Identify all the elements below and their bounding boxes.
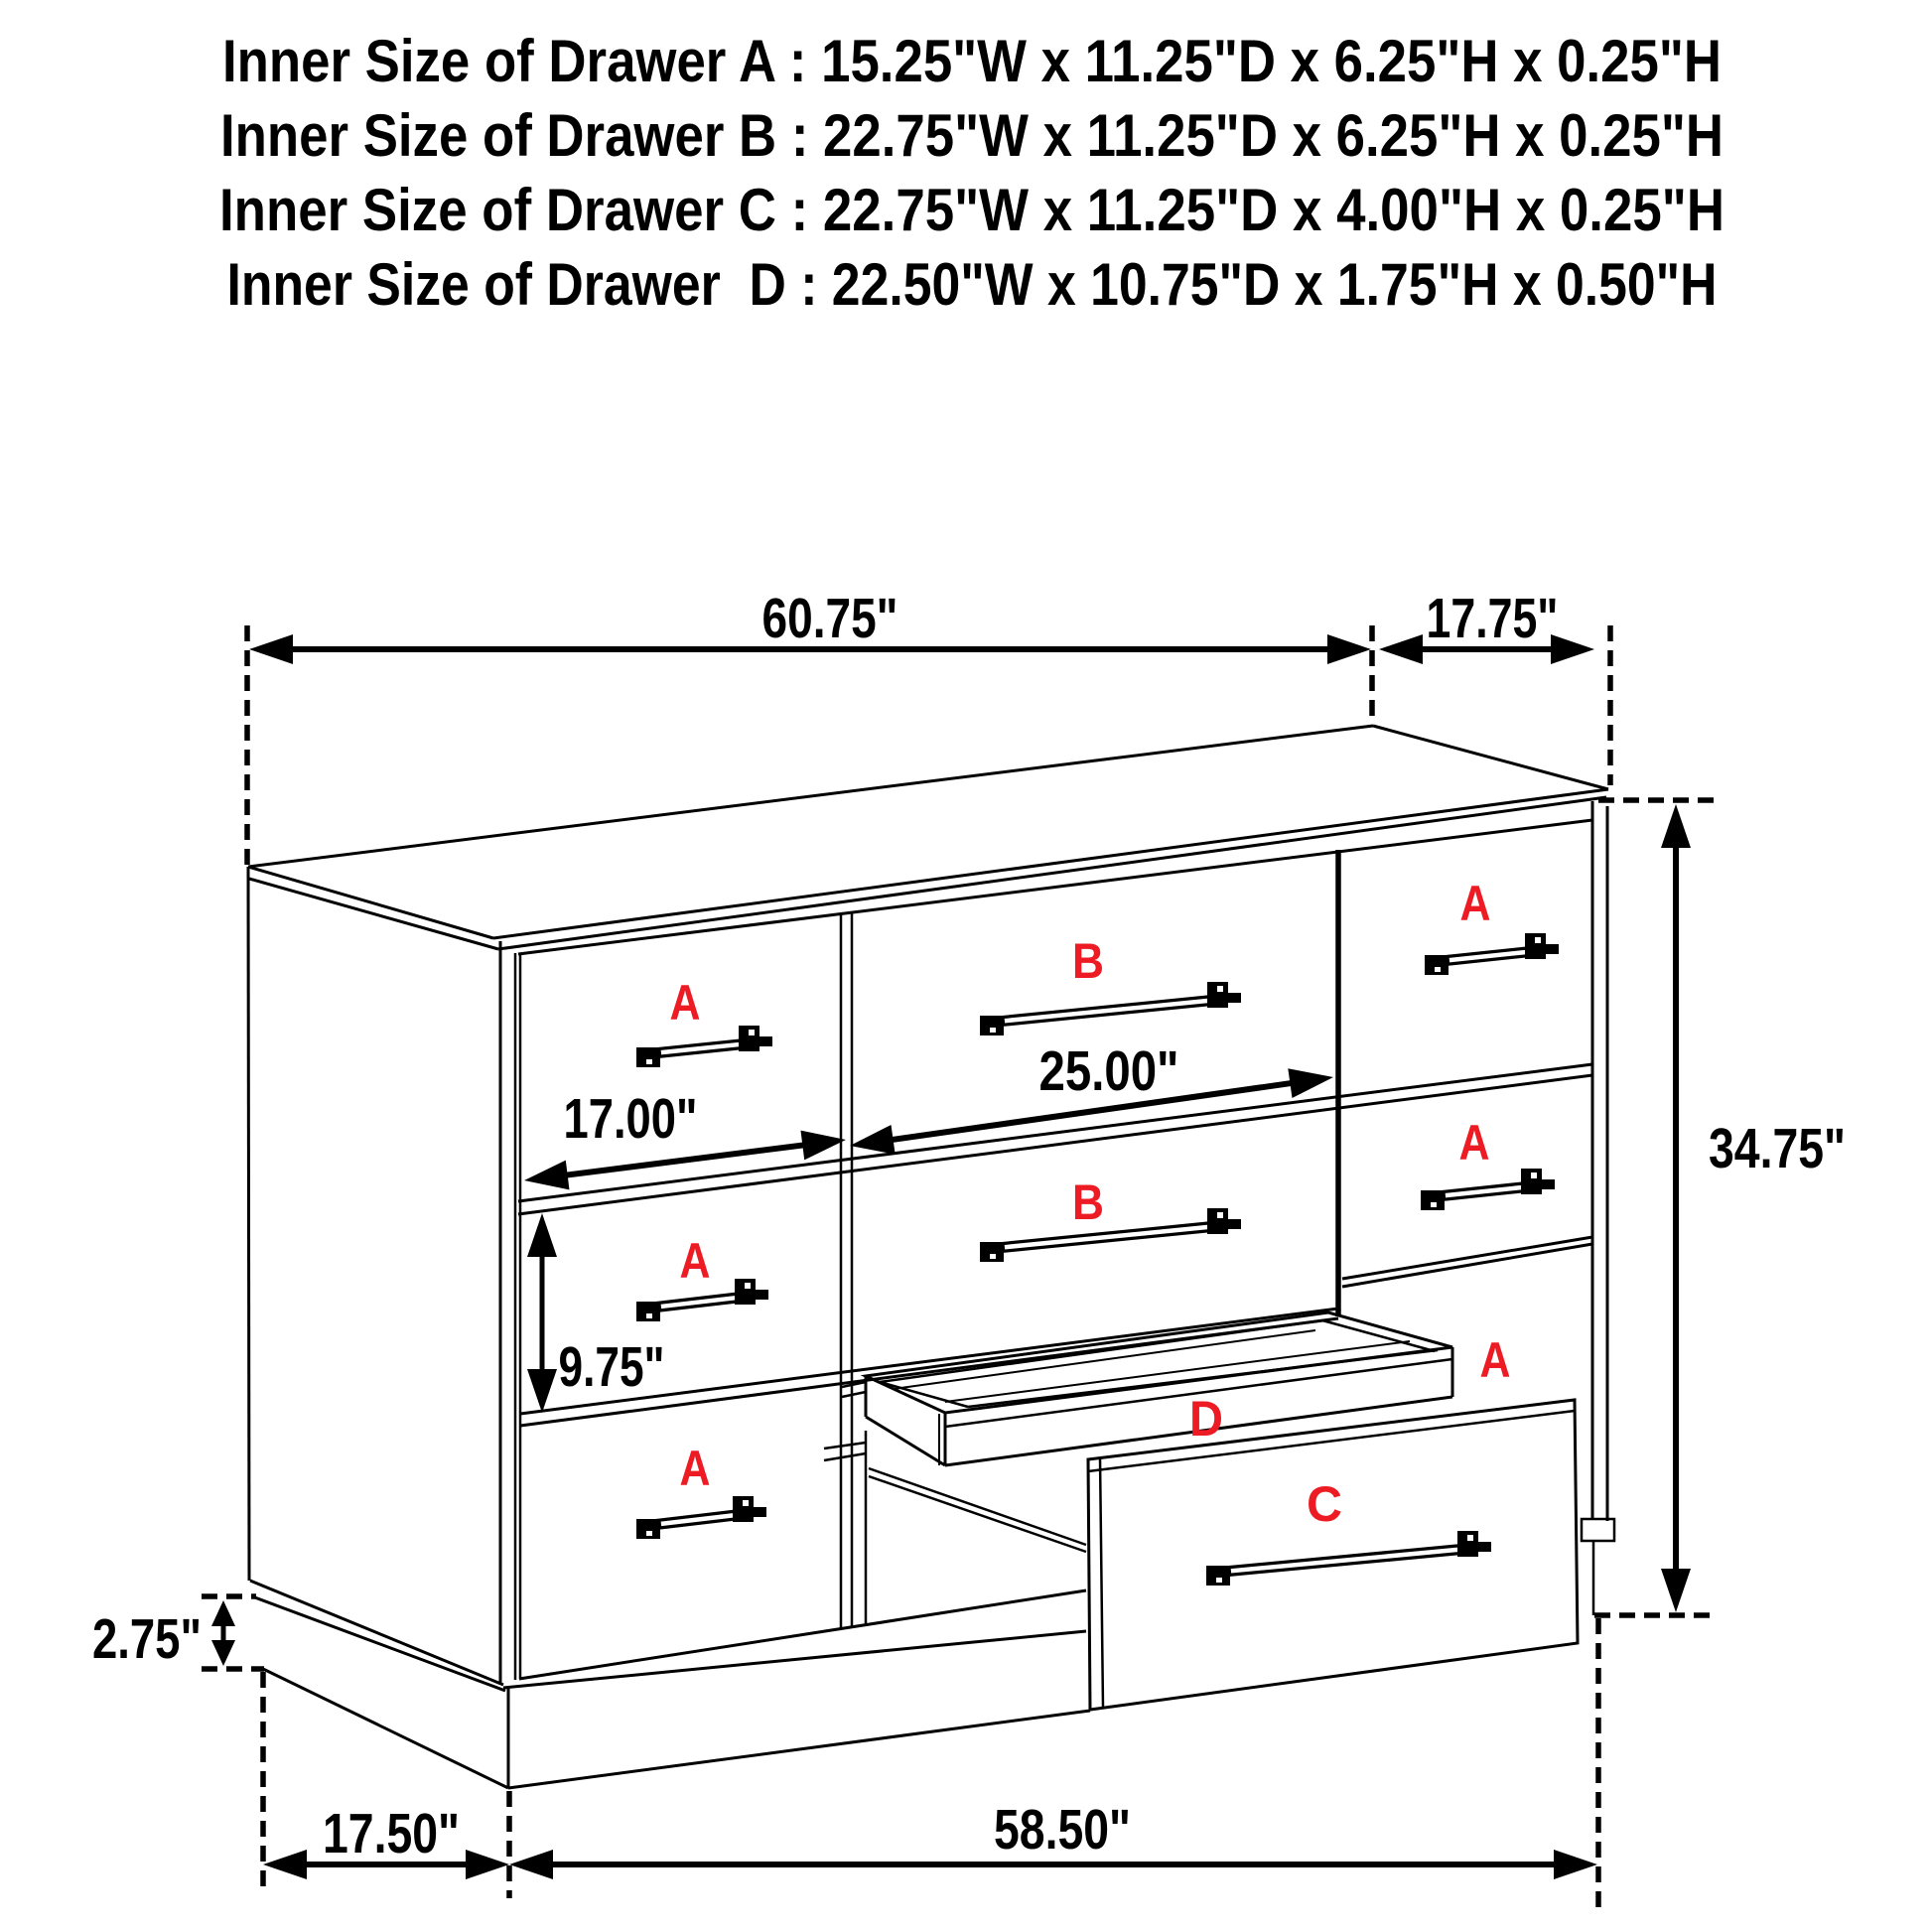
svg-text:17.00": 17.00" bbox=[564, 1087, 698, 1151]
svg-text:C: C bbox=[1307, 1476, 1342, 1532]
svg-text:25.00": 25.00" bbox=[1039, 1039, 1179, 1103]
svg-text:A: A bbox=[670, 975, 701, 1031]
svg-text:A: A bbox=[1459, 1115, 1490, 1171]
svg-text:17.50": 17.50" bbox=[323, 1802, 460, 1865]
svg-text:34.75": 34.75" bbox=[1709, 1117, 1846, 1180]
svg-text:A: A bbox=[1480, 1332, 1511, 1388]
svg-text:A: A bbox=[680, 1441, 711, 1496]
svg-text:B: B bbox=[1072, 933, 1104, 989]
svg-text:Inner Size of Drawer B : 22.75: Inner Size of Drawer B : 22.75"W x 11.25… bbox=[220, 102, 1724, 169]
svg-text:9.75": 9.75" bbox=[559, 1335, 665, 1399]
svg-text:A: A bbox=[680, 1233, 711, 1289]
svg-text:Inner Size of Drawer D : 22.5: Inner Size of Drawer D : 22.50"W x 10.75… bbox=[227, 251, 1718, 318]
svg-text:Inner Size of Drawer C : 22.75: Inner Size of Drawer C : 22.75"W x 11.25… bbox=[219, 177, 1725, 243]
svg-text:D: D bbox=[1189, 1391, 1223, 1447]
svg-text:A: A bbox=[1460, 876, 1491, 931]
svg-text:60.75": 60.75" bbox=[762, 587, 898, 650]
svg-text:B: B bbox=[1072, 1174, 1104, 1230]
svg-text:17.75": 17.75" bbox=[1427, 587, 1559, 650]
svg-text:Inner Size of Drawer A : 15.25: Inner Size of Drawer A : 15.25"W x 11.25… bbox=[222, 28, 1722, 94]
svg-text:2.75": 2.75" bbox=[92, 1607, 202, 1671]
svg-text:58.50": 58.50" bbox=[994, 1798, 1131, 1862]
